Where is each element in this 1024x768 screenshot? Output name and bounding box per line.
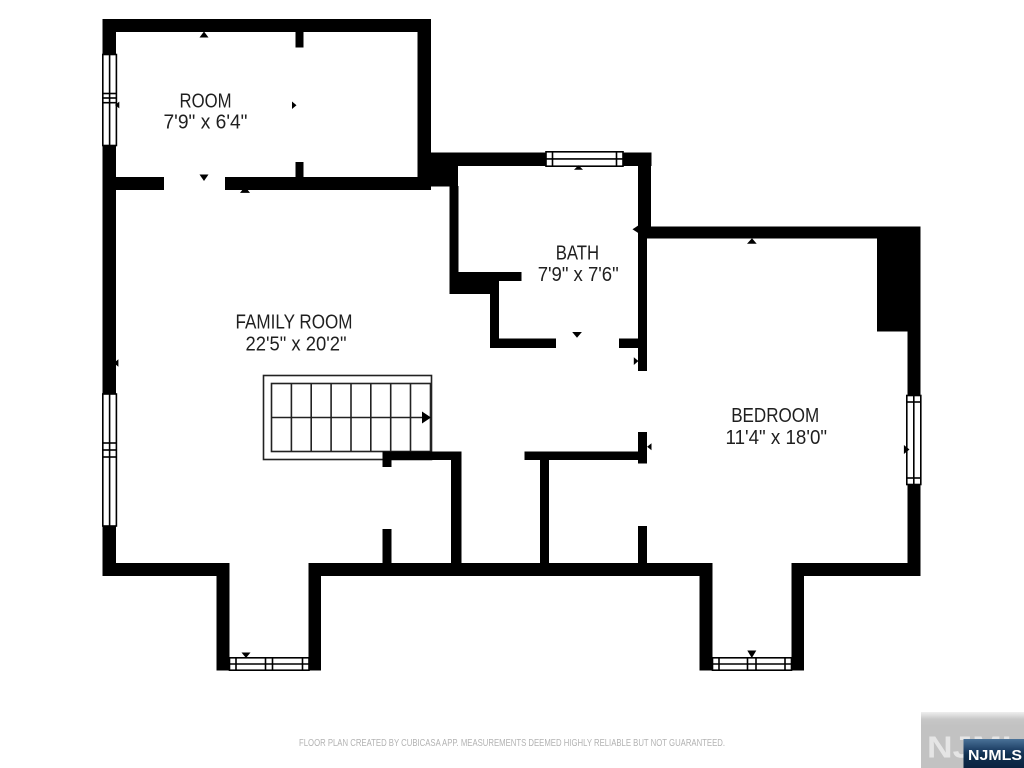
svg-text:BATH: BATH: [556, 243, 599, 265]
svg-text:ROOM: ROOM: [180, 91, 232, 113]
svg-text:11'4" x 18'0": 11'4" x 18'0": [726, 427, 828, 449]
svg-text:22'5" x 20'2": 22'5" x 20'2": [246, 334, 347, 356]
svg-text:7'9" x 7'6": 7'9" x 7'6": [538, 264, 619, 286]
svg-text:FAMILY ROOM: FAMILY ROOM: [236, 312, 353, 334]
svg-text:NJMLS: NJMLS: [968, 747, 1022, 764]
svg-text:FLOOR PLAN CREATED BY CUBICASA: FLOOR PLAN CREATED BY CUBICASA APP. MEAS…: [299, 737, 725, 749]
svg-text:7'9" x 6'4": 7'9" x 6'4": [164, 112, 248, 134]
svg-text:BEDROOM: BEDROOM: [731, 405, 819, 427]
